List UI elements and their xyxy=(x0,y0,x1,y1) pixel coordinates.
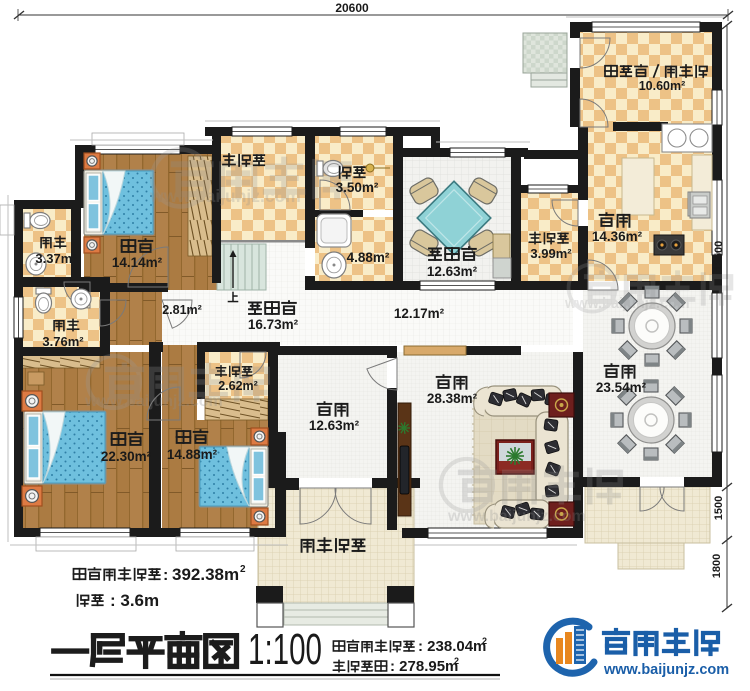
svg-text:12.63m²: 12.63m² xyxy=(309,418,360,433)
svg-text:16.73m²: 16.73m² xyxy=(248,317,299,332)
svg-text:12.17m²: 12.17m² xyxy=(394,306,445,321)
svg-text:3.37m²: 3.37m² xyxy=(35,251,77,266)
svg-text:4.88m²: 4.88m² xyxy=(347,250,390,265)
svg-text:20600: 20600 xyxy=(335,1,369,15)
svg-text:14.88m²: 14.88m² xyxy=(167,447,218,462)
svg-text:3.50m²: 3.50m² xyxy=(336,180,379,195)
svg-text:14.36m²: 14.36m² xyxy=(592,229,643,244)
svg-text:2.62m²: 2.62m² xyxy=(218,379,258,393)
svg-text:10.60m²: 10.60m² xyxy=(639,79,686,93)
svg-text::: : xyxy=(163,567,168,584)
svg-text:: 3.6m: : 3.6m xyxy=(110,591,159,610)
svg-text:1500: 1500 xyxy=(713,496,725,520)
svg-text:: 238.04m: : 238.04m xyxy=(418,638,486,655)
svg-text:2: 2 xyxy=(482,636,487,646)
svg-text:www.baijunjz.com: www.baijunjz.com xyxy=(447,508,586,525)
svg-text:22.30m²: 22.30m² xyxy=(101,449,152,464)
svg-text:www.baijunjz.com: www.baijunjz.com xyxy=(84,393,223,410)
svg-text:1800: 1800 xyxy=(711,554,723,578)
svg-text:23.54m²: 23.54m² xyxy=(596,380,647,395)
svg-text:www.baijunjz.com: www.baijunjz.com xyxy=(149,186,301,206)
svg-text:1:100: 1:100 xyxy=(248,625,322,674)
svg-text:12.63m²: 12.63m² xyxy=(427,264,478,279)
svg-text:2: 2 xyxy=(240,564,246,575)
svg-text:: 278.95m: : 278.95m xyxy=(390,658,458,675)
svg-text:392.38m: 392.38m xyxy=(172,565,239,584)
svg-text:13500: 13500 xyxy=(713,241,725,272)
svg-text:3.99m²: 3.99m² xyxy=(530,246,572,261)
svg-text:www.baijunjz.com: www.baijunjz.com xyxy=(603,662,729,678)
svg-text:2: 2 xyxy=(454,656,459,666)
svg-text:www.baijunjz.com: www.baijunjz.com xyxy=(564,296,690,312)
svg-text:28.38m²: 28.38m² xyxy=(427,391,478,406)
svg-text:2.81m²: 2.81m² xyxy=(162,303,202,317)
svg-text:3.76m²: 3.76m² xyxy=(42,334,84,349)
svg-text:14.14m²: 14.14m² xyxy=(112,255,163,270)
